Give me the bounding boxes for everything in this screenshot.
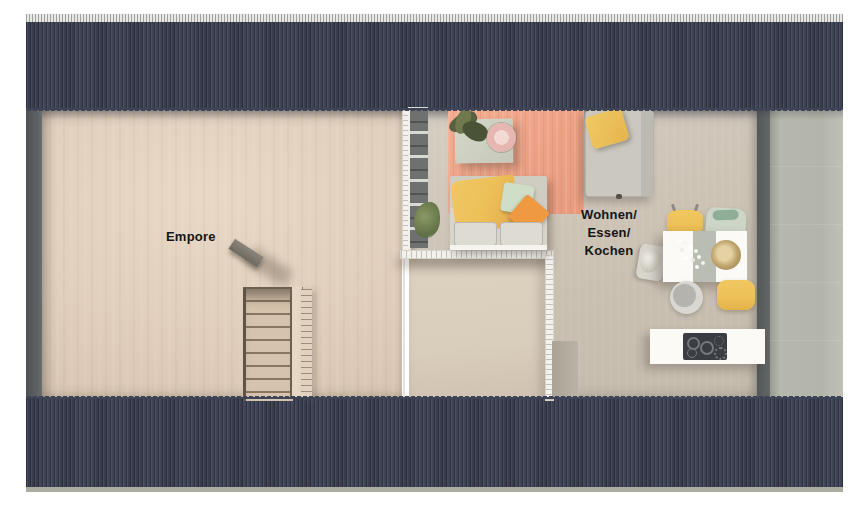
dining-table bbox=[663, 231, 747, 282]
exterior-wall-left bbox=[26, 108, 42, 399]
sofa bbox=[450, 176, 547, 250]
outdoor-roof-strip bbox=[770, 108, 843, 399]
roof-band-top bbox=[26, 22, 843, 108]
cooktop bbox=[683, 333, 727, 360]
label-line: Essen/ bbox=[564, 224, 654, 242]
dining-chair-yellow bbox=[717, 280, 755, 310]
burner-icon bbox=[687, 348, 697, 358]
decor-bowl bbox=[711, 240, 741, 270]
armchair-foot bbox=[616, 194, 622, 199]
flowers-decor bbox=[677, 239, 681, 243]
burner-icon bbox=[714, 336, 724, 346]
floorplan: Empore Wohnen/ Essen/ Kochen bbox=[0, 0, 866, 517]
armchair-side bbox=[641, 111, 653, 196]
burner-icon bbox=[714, 347, 727, 360]
room-label-wohnen-essen-kochen: Wohnen/ Essen/ Kochen bbox=[564, 206, 654, 260]
roof-edge-bottom bbox=[26, 394, 843, 399]
room-label-empore: Empore bbox=[166, 229, 216, 244]
sofa-cushion bbox=[500, 222, 543, 246]
plant-icon bbox=[446, 108, 492, 154]
open-edge-line bbox=[403, 257, 405, 399]
floor-room-below-sofa bbox=[409, 257, 545, 399]
kitchen-island bbox=[650, 329, 765, 364]
sofa-base bbox=[450, 245, 547, 250]
decor-tray bbox=[487, 123, 516, 152]
wall-horizontal bbox=[400, 250, 554, 259]
sofa-cushion bbox=[454, 222, 497, 246]
roof-band-bottom bbox=[26, 399, 843, 487]
stool bbox=[670, 281, 703, 314]
burner-icon bbox=[700, 341, 714, 355]
floor-empore bbox=[42, 108, 402, 399]
roof-edge-top bbox=[26, 108, 843, 113]
label-line: Wohnen/ bbox=[564, 206, 654, 224]
staircase bbox=[243, 287, 293, 401]
label-line: Kochen bbox=[564, 242, 654, 260]
stair-railing bbox=[301, 289, 312, 399]
eave-strip bbox=[26, 487, 843, 492]
shaft-block bbox=[552, 341, 578, 399]
